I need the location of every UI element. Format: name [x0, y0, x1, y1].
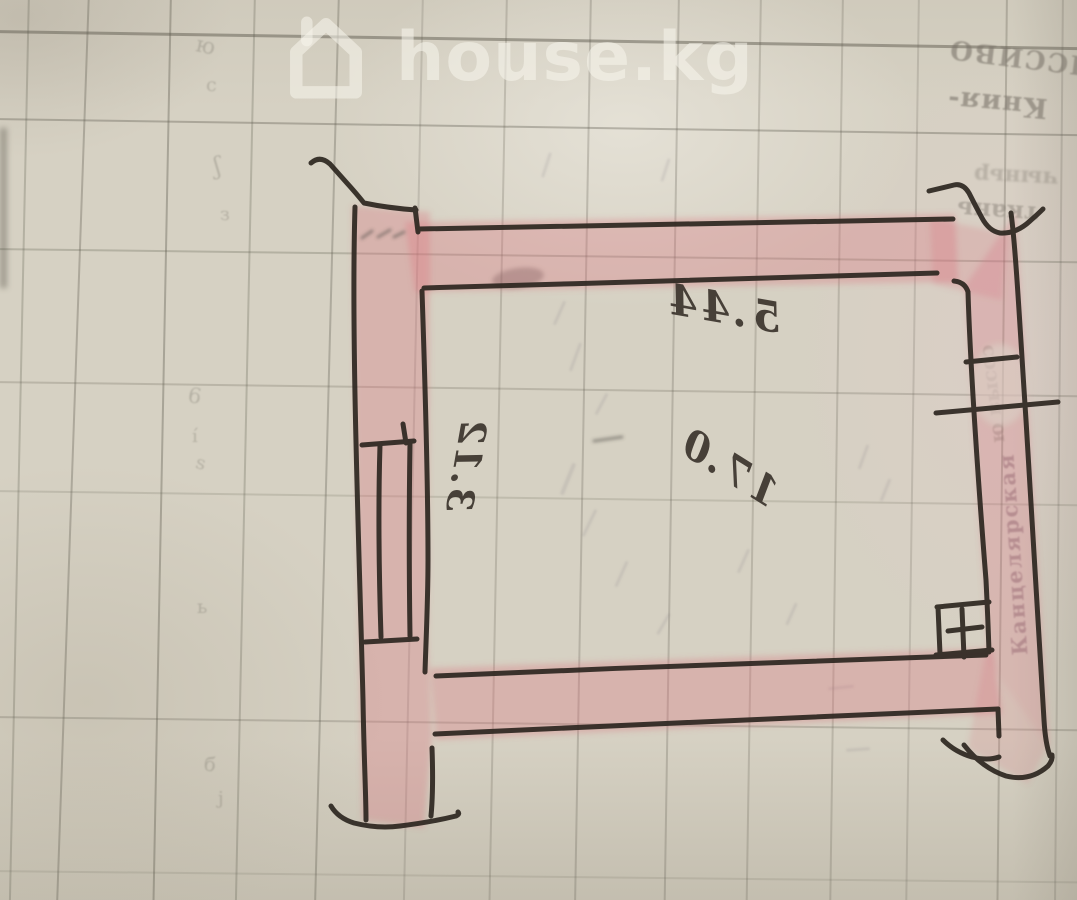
wall-left-inner-line-lower	[431, 748, 433, 816]
window-pane-line-2	[409, 443, 410, 636]
corner-stub-bottom-right	[998, 709, 999, 736]
window-bottom-cap	[365, 639, 417, 642]
pencil-dash	[594, 437, 622, 441]
vent-square-left	[938, 607, 940, 654]
corner-flourish-top-left	[311, 159, 416, 210]
photographed-floor-plan-sketch: ЯССИВО Кния- чыньр ткань ю высоɔ Канцеля…	[0, 0, 1077, 900]
window-tick	[403, 424, 406, 443]
vent-cross-vertical	[962, 609, 964, 657]
vent-cross-horizontal	[948, 627, 982, 631]
vent-square-top	[937, 602, 989, 607]
bottom-wall-shade	[430, 648, 1002, 740]
floor-plan-sketch	[0, 0, 1077, 900]
window-pane-line-1	[379, 445, 381, 637]
